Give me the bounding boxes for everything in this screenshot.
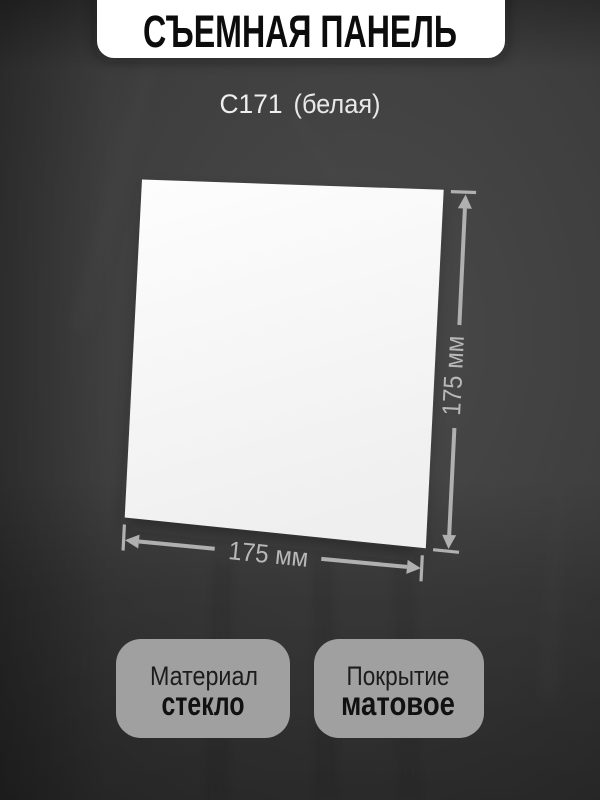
svg-text:С171: С171	[220, 89, 283, 119]
svg-text:(белая): (белая)	[294, 89, 381, 119]
svg-text:матовое: матовое	[341, 685, 455, 722]
svg-text:СЪЕМНАЯ ПАНЕЛЬ: СЪЕМНАЯ ПАНЕЛЬ	[143, 6, 457, 57]
svg-text:175 мм: 175 мм	[436, 335, 470, 416]
svg-text:стекло: стекло	[162, 685, 245, 722]
